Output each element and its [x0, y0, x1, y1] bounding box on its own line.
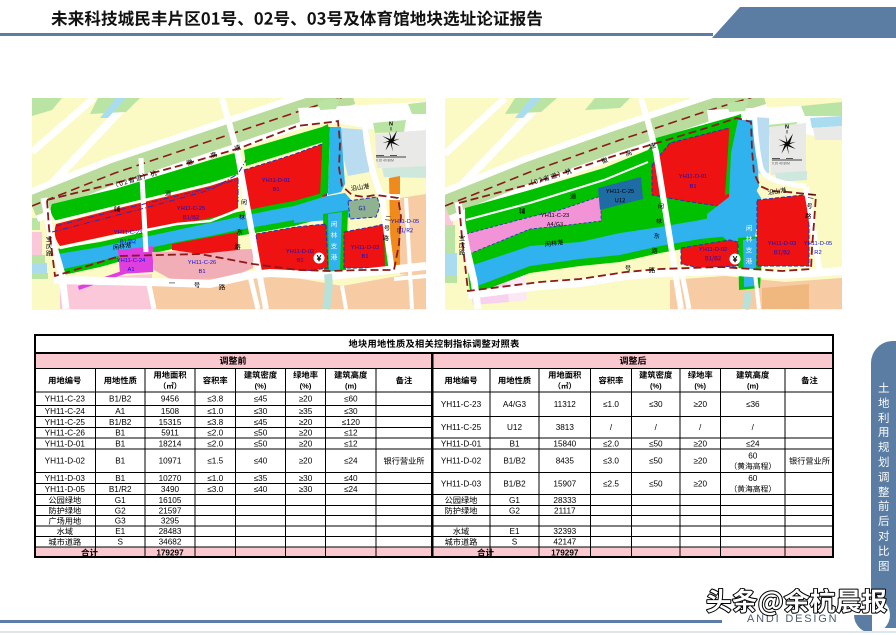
svg-text:B1: B1: [689, 184, 696, 190]
svg-text:60: 60: [748, 474, 758, 483]
svg-text:16105: 16105: [159, 496, 182, 505]
svg-text:B1: B1: [198, 269, 205, 275]
svg-text:≤45: ≤45: [254, 418, 268, 427]
svg-text:≤3.0: ≤3.0: [207, 485, 223, 494]
svg-text:179297: 179297: [156, 548, 184, 557]
svg-text:≤30: ≤30: [254, 407, 268, 416]
svg-text:E1: E1: [115, 527, 125, 536]
svg-text:9456: 9456: [161, 395, 180, 404]
svg-text:YH11-C-25: YH11-C-25: [606, 189, 635, 195]
svg-text:10971: 10971: [159, 457, 182, 466]
svg-text:YH11-D-03: YH11-D-03: [45, 474, 86, 483]
svg-text:YH11-D-03: YH11-D-03: [441, 479, 482, 488]
svg-text:≤2.0: ≤2.0: [207, 439, 223, 448]
svg-text:≥20: ≥20: [693, 457, 707, 466]
svg-text:YH11-C-23: YH11-C-23: [541, 213, 570, 219]
svg-text:≤50: ≤50: [649, 479, 663, 488]
svg-text:179297: 179297: [551, 548, 579, 557]
svg-text:A1: A1: [115, 407, 125, 416]
svg-text:≤24: ≤24: [344, 485, 358, 494]
svg-text:≤50: ≤50: [254, 429, 268, 438]
svg-text:G3: G3: [115, 517, 126, 526]
svg-text:(m): (m): [747, 381, 759, 390]
svg-text:≤12: ≤12: [344, 439, 358, 448]
svg-text:≤30: ≤30: [649, 400, 663, 409]
svg-text:≥20: ≥20: [299, 418, 313, 427]
svg-text:B1/B2: B1/B2: [503, 479, 526, 488]
svg-text:YH11-D-02: YH11-D-02: [699, 247, 728, 253]
svg-text:B1: B1: [272, 187, 279, 193]
svg-text:≤1.0: ≤1.0: [207, 474, 223, 483]
svg-text:0 20 40 80M: 0 20 40 80M: [376, 159, 394, 163]
svg-text:42147: 42147: [553, 538, 576, 547]
svg-text:≤1.0: ≤1.0: [603, 400, 619, 409]
svg-text:≤12: ≤12: [344, 429, 358, 438]
svg-text:YH11-C-25: YH11-C-25: [177, 206, 206, 212]
svg-text:N: N: [785, 125, 789, 131]
svg-text:≤2.5: ≤2.5: [603, 479, 619, 488]
svg-text:28333: 28333: [553, 496, 576, 505]
svg-text:≤40: ≤40: [254, 485, 268, 494]
svg-text:B1/B2: B1/B2: [503, 457, 526, 466]
svg-text:≤24: ≤24: [344, 457, 358, 466]
svg-text:≤40: ≤40: [344, 474, 358, 483]
svg-text:B1: B1: [296, 258, 303, 264]
svg-text:YH11-C-24: YH11-C-24: [117, 258, 146, 264]
svg-text:B1/B2: B1/B2: [109, 395, 132, 404]
svg-text:YH11-C-24: YH11-C-24: [45, 407, 86, 416]
svg-text:≤1.0: ≤1.0: [207, 407, 223, 416]
svg-text:34682: 34682: [159, 538, 182, 547]
svg-text:3813: 3813: [556, 423, 575, 432]
svg-text:≥35: ≥35: [299, 407, 313, 416]
svg-text:(%): (%): [650, 381, 662, 390]
svg-text:≤35: ≤35: [254, 474, 268, 483]
svg-text:YH11-C-23: YH11-C-23: [45, 395, 86, 404]
svg-text:A1: A1: [127, 267, 134, 273]
svg-text:≤2.0: ≤2.0: [207, 429, 223, 438]
svg-text:YH11-C-26: YH11-C-26: [45, 429, 86, 438]
svg-text:YH11-C-26: YH11-C-26: [188, 260, 217, 266]
svg-text:S: S: [512, 538, 518, 547]
svg-text:1508: 1508: [161, 407, 180, 416]
svg-text:≤60: ≤60: [344, 395, 358, 404]
svg-text:YH11-C-25: YH11-C-25: [441, 423, 482, 432]
svg-text:B1: B1: [115, 457, 125, 466]
svg-text:≤30: ≤30: [344, 407, 358, 416]
svg-text:YH11-D-01: YH11-D-01: [45, 439, 86, 448]
svg-text:YH11-C-23: YH11-C-23: [114, 230, 143, 236]
svg-text:YH11-D-02: YH11-D-02: [441, 457, 482, 466]
svg-text:18214: 18214: [159, 439, 182, 448]
svg-text:YH11-D-05: YH11-D-05: [391, 219, 420, 225]
svg-text:(%): (%): [694, 381, 706, 390]
svg-text:B1/B2: B1/B2: [109, 418, 132, 427]
svg-text:60: 60: [748, 451, 758, 460]
svg-text:≤2.0: ≤2.0: [603, 439, 619, 448]
svg-text:≤3.8: ≤3.8: [207, 395, 223, 404]
svg-text:≤1.5: ≤1.5: [207, 457, 223, 466]
svg-text:S: S: [117, 538, 123, 547]
svg-text:B1: B1: [361, 254, 368, 260]
svg-text:G1: G1: [509, 496, 520, 505]
svg-text:≥20: ≥20: [693, 400, 707, 409]
svg-text:≤45: ≤45: [254, 395, 268, 404]
svg-text:≥20: ≥20: [299, 457, 313, 466]
svg-text:G2: G2: [509, 506, 520, 515]
svg-text:YH11-D-01: YH11-D-01: [262, 178, 291, 184]
svg-text:(%): (%): [300, 381, 312, 390]
svg-text:≥20: ≥20: [299, 439, 313, 448]
svg-text:5911: 5911: [161, 429, 179, 438]
svg-text:3295: 3295: [161, 517, 180, 526]
svg-text:B1: B1: [115, 429, 125, 438]
svg-text:≤24: ≤24: [746, 439, 760, 448]
svg-text:YH11-D-03: YH11-D-03: [768, 241, 797, 247]
svg-text:3490: 3490: [161, 485, 180, 494]
svg-text:≥30: ≥30: [299, 474, 313, 483]
svg-text:B1: B1: [115, 439, 125, 448]
svg-text:(%): (%): [255, 381, 267, 390]
svg-text:≤3.0: ≤3.0: [603, 457, 619, 466]
svg-text:YH11-D-01: YH11-D-01: [679, 174, 708, 180]
svg-text:YH11-D-02: YH11-D-02: [286, 249, 315, 255]
svg-text:≤50: ≤50: [649, 457, 663, 466]
svg-text:YH11-C-23: YH11-C-23: [441, 400, 482, 409]
svg-text:≤36: ≤36: [746, 400, 760, 409]
svg-text:8435: 8435: [556, 457, 575, 466]
svg-text:21597: 21597: [159, 506, 182, 515]
svg-text:G1: G1: [115, 496, 126, 505]
svg-text:10270: 10270: [159, 474, 182, 483]
svg-text:32393: 32393: [553, 527, 576, 536]
svg-text:0 20 40 80M: 0 20 40 80M: [772, 162, 790, 166]
svg-text:A4/G3: A4/G3: [503, 400, 527, 409]
svg-text:21117: 21117: [554, 506, 576, 515]
svg-text:YH11-C-25: YH11-C-25: [45, 418, 86, 427]
svg-text:≤3.8: ≤3.8: [207, 418, 223, 427]
svg-text:≥20: ≥20: [693, 479, 707, 488]
svg-text:U12: U12: [507, 423, 522, 432]
svg-text:B1/R2: B1/R2: [109, 485, 132, 494]
svg-text:28483: 28483: [159, 527, 182, 536]
svg-text:E1: E1: [509, 527, 519, 536]
svg-text:15315: 15315: [159, 418, 182, 427]
svg-text:B1: B1: [115, 474, 125, 483]
svg-text:B1: B1: [509, 439, 519, 448]
svg-text:≥20: ≥20: [299, 395, 313, 404]
svg-text:≥20: ≥20: [693, 439, 707, 448]
svg-text:R2: R2: [814, 250, 821, 256]
svg-text:YH11-D-01: YH11-D-01: [441, 439, 482, 448]
svg-text:11312: 11312: [554, 400, 577, 409]
svg-text:YH11-D-02: YH11-D-02: [45, 457, 86, 466]
svg-text:≥30: ≥30: [299, 485, 313, 494]
svg-text:15840: 15840: [553, 439, 576, 448]
svg-text:≤50: ≤50: [254, 439, 268, 448]
svg-text:G2: G2: [115, 506, 126, 515]
svg-text:≥20: ≥20: [299, 429, 313, 438]
svg-text:YH11-D-05: YH11-D-05: [45, 485, 86, 494]
svg-text:15907: 15907: [553, 479, 576, 488]
svg-text:≤120: ≤120: [342, 418, 361, 427]
svg-text:≤40: ≤40: [254, 457, 268, 466]
svg-text:(m): (m): [345, 381, 357, 390]
svg-text:≤50: ≤50: [649, 439, 663, 448]
svg-text:YH11-D-03: YH11-D-03: [351, 245, 380, 251]
svg-text:N: N: [389, 122, 393, 128]
svg-text:YH11-D-05: YH11-D-05: [804, 241, 833, 247]
